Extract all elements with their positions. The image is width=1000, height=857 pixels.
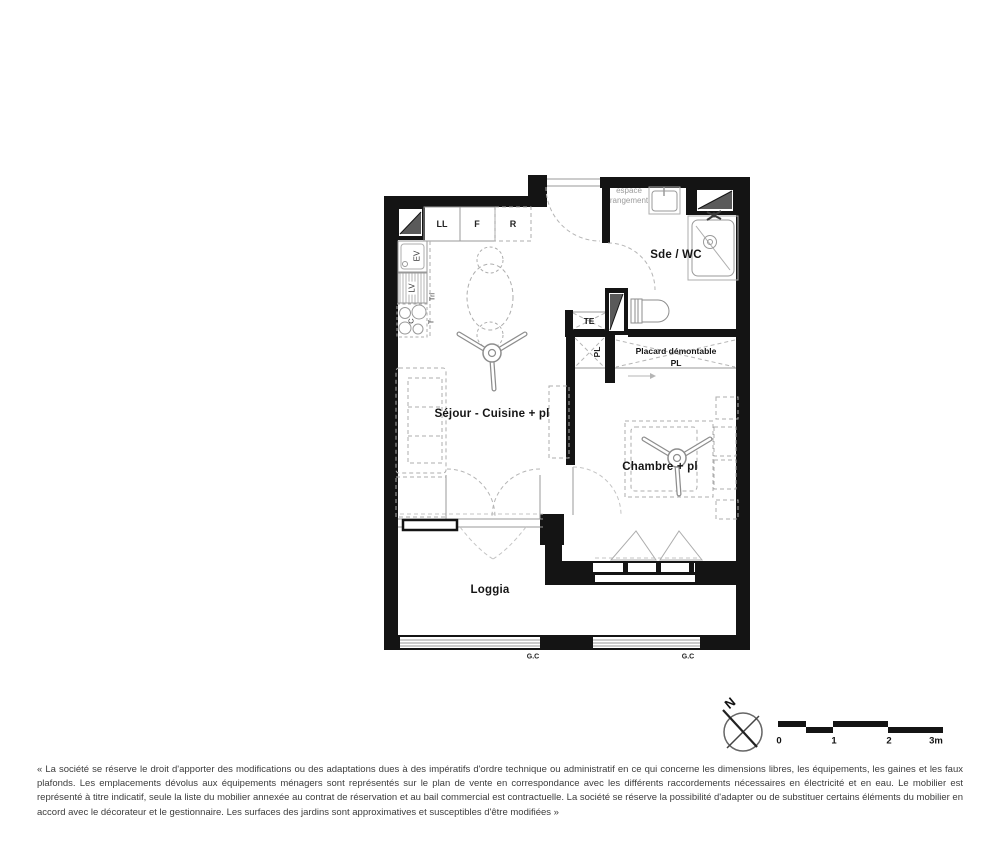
sdewc-door-swing-arc: [608, 243, 655, 290]
label-rangement: R: [510, 219, 517, 229]
label-cuisson: C: [407, 318, 416, 323]
shaft-te-icon: [605, 288, 628, 335]
chambre-window-glass: [593, 563, 695, 572]
wall-entry-jamb: [528, 175, 547, 207]
wall-loggia-divider: [545, 545, 562, 585]
legal-disclaimer: « La société se réserve le droit d'appor…: [37, 763, 963, 820]
scale-bar: [778, 721, 943, 733]
window-opening-triangle: [611, 531, 656, 560]
label-placard-demontable: Placard démontable: [636, 346, 717, 356]
label-evier: EV: [413, 251, 422, 262]
chambre-window-sill: [595, 575, 695, 582]
label-frigo: F: [474, 219, 480, 229]
label-sejour-cuisine: Séjour - Cuisine + pl: [434, 408, 549, 420]
sofa: [396, 368, 446, 473]
direction-arrow: [628, 373, 656, 379]
floorplan-page: LL F R EV LV C Tri T espace rangement Sd…: [0, 0, 1000, 857]
scale-tick-1: 1: [831, 736, 836, 747]
bay-door-swing-arc: [447, 469, 495, 517]
entry-door-swing-arc: [546, 187, 600, 241]
label-t: T: [429, 320, 436, 324]
label-lave-linge: LL: [437, 219, 448, 229]
label-tri: Tri: [430, 293, 437, 301]
label-garde-corps-right: G.C: [682, 654, 694, 661]
floorplan-drawing: [0, 0, 1000, 857]
label-pl: PL: [592, 347, 602, 358]
label-espace-rangement: espace rangement: [604, 186, 654, 205]
label-sde-wc: Sde / WC: [650, 249, 701, 261]
chair-icon: [477, 247, 503, 273]
garde-corps-right: [593, 637, 700, 648]
bay-door-swing-arc: [492, 469, 540, 517]
window-opening-triangle: [660, 531, 702, 560]
pillow: [714, 460, 736, 489]
garde-corps-left: [400, 637, 540, 648]
pillow: [714, 427, 736, 456]
label-te: TE: [584, 316, 595, 326]
shower-icon: [688, 211, 738, 280]
label-loggia: Loggia: [471, 584, 510, 596]
scale-tick-2: 2: [886, 736, 891, 747]
bedside-table: [716, 500, 738, 519]
label-lave-vaisselle: LV: [408, 281, 417, 294]
label-garde-corps-left: G.C: [527, 654, 539, 661]
shaft-sdewc-icon: [693, 186, 736, 215]
toilet-icon: [631, 299, 669, 323]
dining-table-icon: [467, 247, 513, 348]
wall-corner-block: [540, 514, 564, 545]
wall-sejour-chambre: [566, 333, 575, 465]
scale-tick-0: 0: [776, 736, 781, 747]
wall-pl-divider: [605, 335, 615, 383]
bay-threshold: [403, 520, 457, 530]
wall-sdewc-bottom: [628, 329, 740, 337]
sejour-furniture: [396, 368, 569, 517]
north-compass-icon: [723, 710, 762, 751]
ceiling-fan-sejour-icon: [459, 334, 525, 389]
label-chambre: Chambre + pl: [622, 461, 698, 473]
armchair: [396, 477, 446, 517]
label-placard-pl: PL: [671, 358, 682, 368]
wall-shaft-divider: [686, 188, 693, 215]
chambre-door-swing-arc: [573, 467, 621, 515]
scale-tick-3m: 3m: [929, 736, 943, 747]
shaft-kitchen-icon: [395, 205, 425, 240]
bedside-table: [716, 397, 738, 419]
